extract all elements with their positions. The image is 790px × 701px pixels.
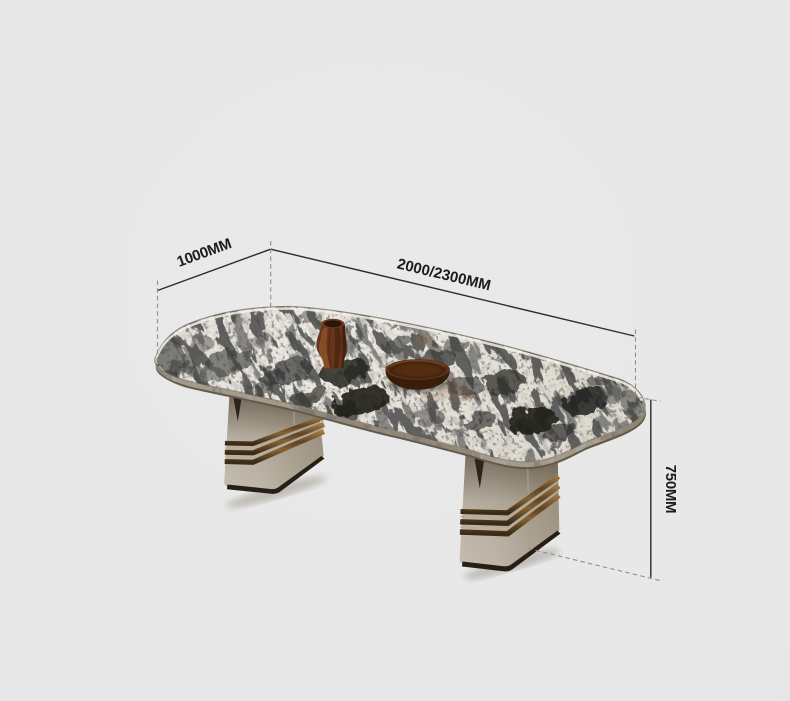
svg-text:750MM: 750MM (662, 465, 679, 514)
